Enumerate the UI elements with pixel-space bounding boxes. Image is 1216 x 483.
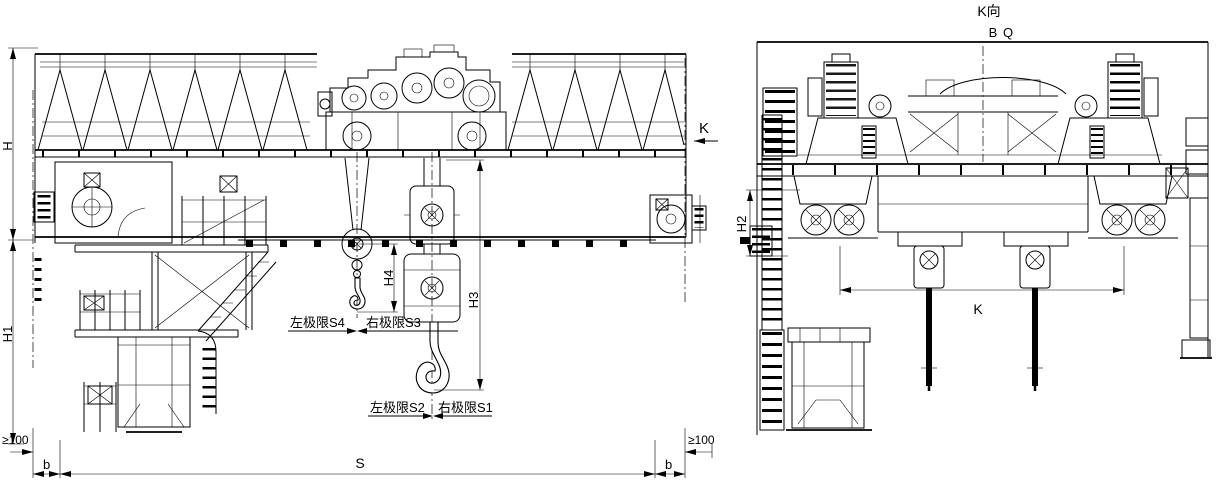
dim-h4-label: H4 bbox=[381, 270, 396, 287]
side-trolley-wheels bbox=[788, 176, 1178, 238]
stairway-and-cab bbox=[75, 176, 276, 432]
dim-h2-label: H2 bbox=[734, 216, 749, 233]
gearbox-wheel bbox=[342, 86, 366, 110]
main-hook-shape bbox=[416, 322, 449, 393]
side-view-k: K向 B Q H2 K bbox=[734, 3, 1212, 435]
dim-h1-label: H1 bbox=[0, 326, 15, 343]
limit-aux-right-label: 右极限S3 bbox=[366, 315, 421, 330]
bridge-girder bbox=[35, 54, 686, 305]
side-cab bbox=[786, 328, 872, 430]
limit-labels-main: 左极限S2 右极限S1 bbox=[368, 400, 493, 419]
dimension-h-h1: H H1 bbox=[0, 48, 38, 444]
operator-cab bbox=[118, 337, 190, 427]
main-hook bbox=[404, 152, 460, 422]
trolley-wheel bbox=[343, 122, 371, 150]
walkway-truss-left bbox=[38, 54, 310, 150]
k-direction-marker: K bbox=[694, 120, 718, 141]
side-girder-center bbox=[878, 176, 1088, 288]
end-truck-left bbox=[34, 162, 172, 243]
stair-stringer bbox=[198, 252, 276, 341]
limit-main-left-label: 左极限S2 bbox=[370, 400, 425, 415]
front-elevation-view: H4 H3 左极限S4 右极限S3 左极限S2 右极限S1 H bbox=[0, 45, 718, 478]
aux-hook bbox=[342, 152, 372, 318]
overhead-crane-drawing: H4 H3 左极限S4 右极限S3 左极限S2 右极限S1 H bbox=[0, 0, 1216, 483]
limit-main-right-label: 右极限S1 bbox=[438, 400, 493, 415]
dim-q-top-label: Q bbox=[1003, 25, 1013, 40]
k-view-title: K向 bbox=[977, 3, 1000, 19]
dim-b-left-label: b bbox=[43, 457, 50, 472]
limit-aux-left-label: 左极限S4 bbox=[290, 315, 345, 330]
dim-min100-left-label: ≥100 bbox=[2, 433, 29, 447]
dim-s-label: S bbox=[355, 455, 364, 471]
trolley-wheel bbox=[458, 122, 486, 150]
dim-b-top-label: B bbox=[989, 25, 998, 40]
crane-wheel bbox=[657, 205, 685, 233]
dim-h-label: H bbox=[0, 141, 15, 150]
operator-cab-side bbox=[792, 342, 864, 428]
dimensions-bottom: ≥100 b S b ≥100 bbox=[2, 428, 715, 478]
dim-k-label: K bbox=[973, 301, 983, 317]
dimension-k: K bbox=[840, 246, 1124, 317]
walkway-truss-right bbox=[508, 54, 684, 150]
dim-b-right-label: b bbox=[665, 457, 672, 472]
dim-h3-label: H3 bbox=[466, 292, 481, 309]
k-direction-label: K bbox=[699, 120, 709, 137]
side-ladder bbox=[740, 88, 797, 435]
aux-hook-shape bbox=[350, 278, 365, 309]
engineering-drawing-sheet: H4 H3 左极限S4 右极限S3 左极限S2 右极限S1 H bbox=[0, 0, 1216, 483]
trolley bbox=[318, 45, 506, 150]
side-view-title: K向 B Q bbox=[977, 3, 1013, 40]
dim-min100-right-label: ≥100 bbox=[688, 433, 715, 447]
end-truck-right bbox=[650, 195, 706, 243]
